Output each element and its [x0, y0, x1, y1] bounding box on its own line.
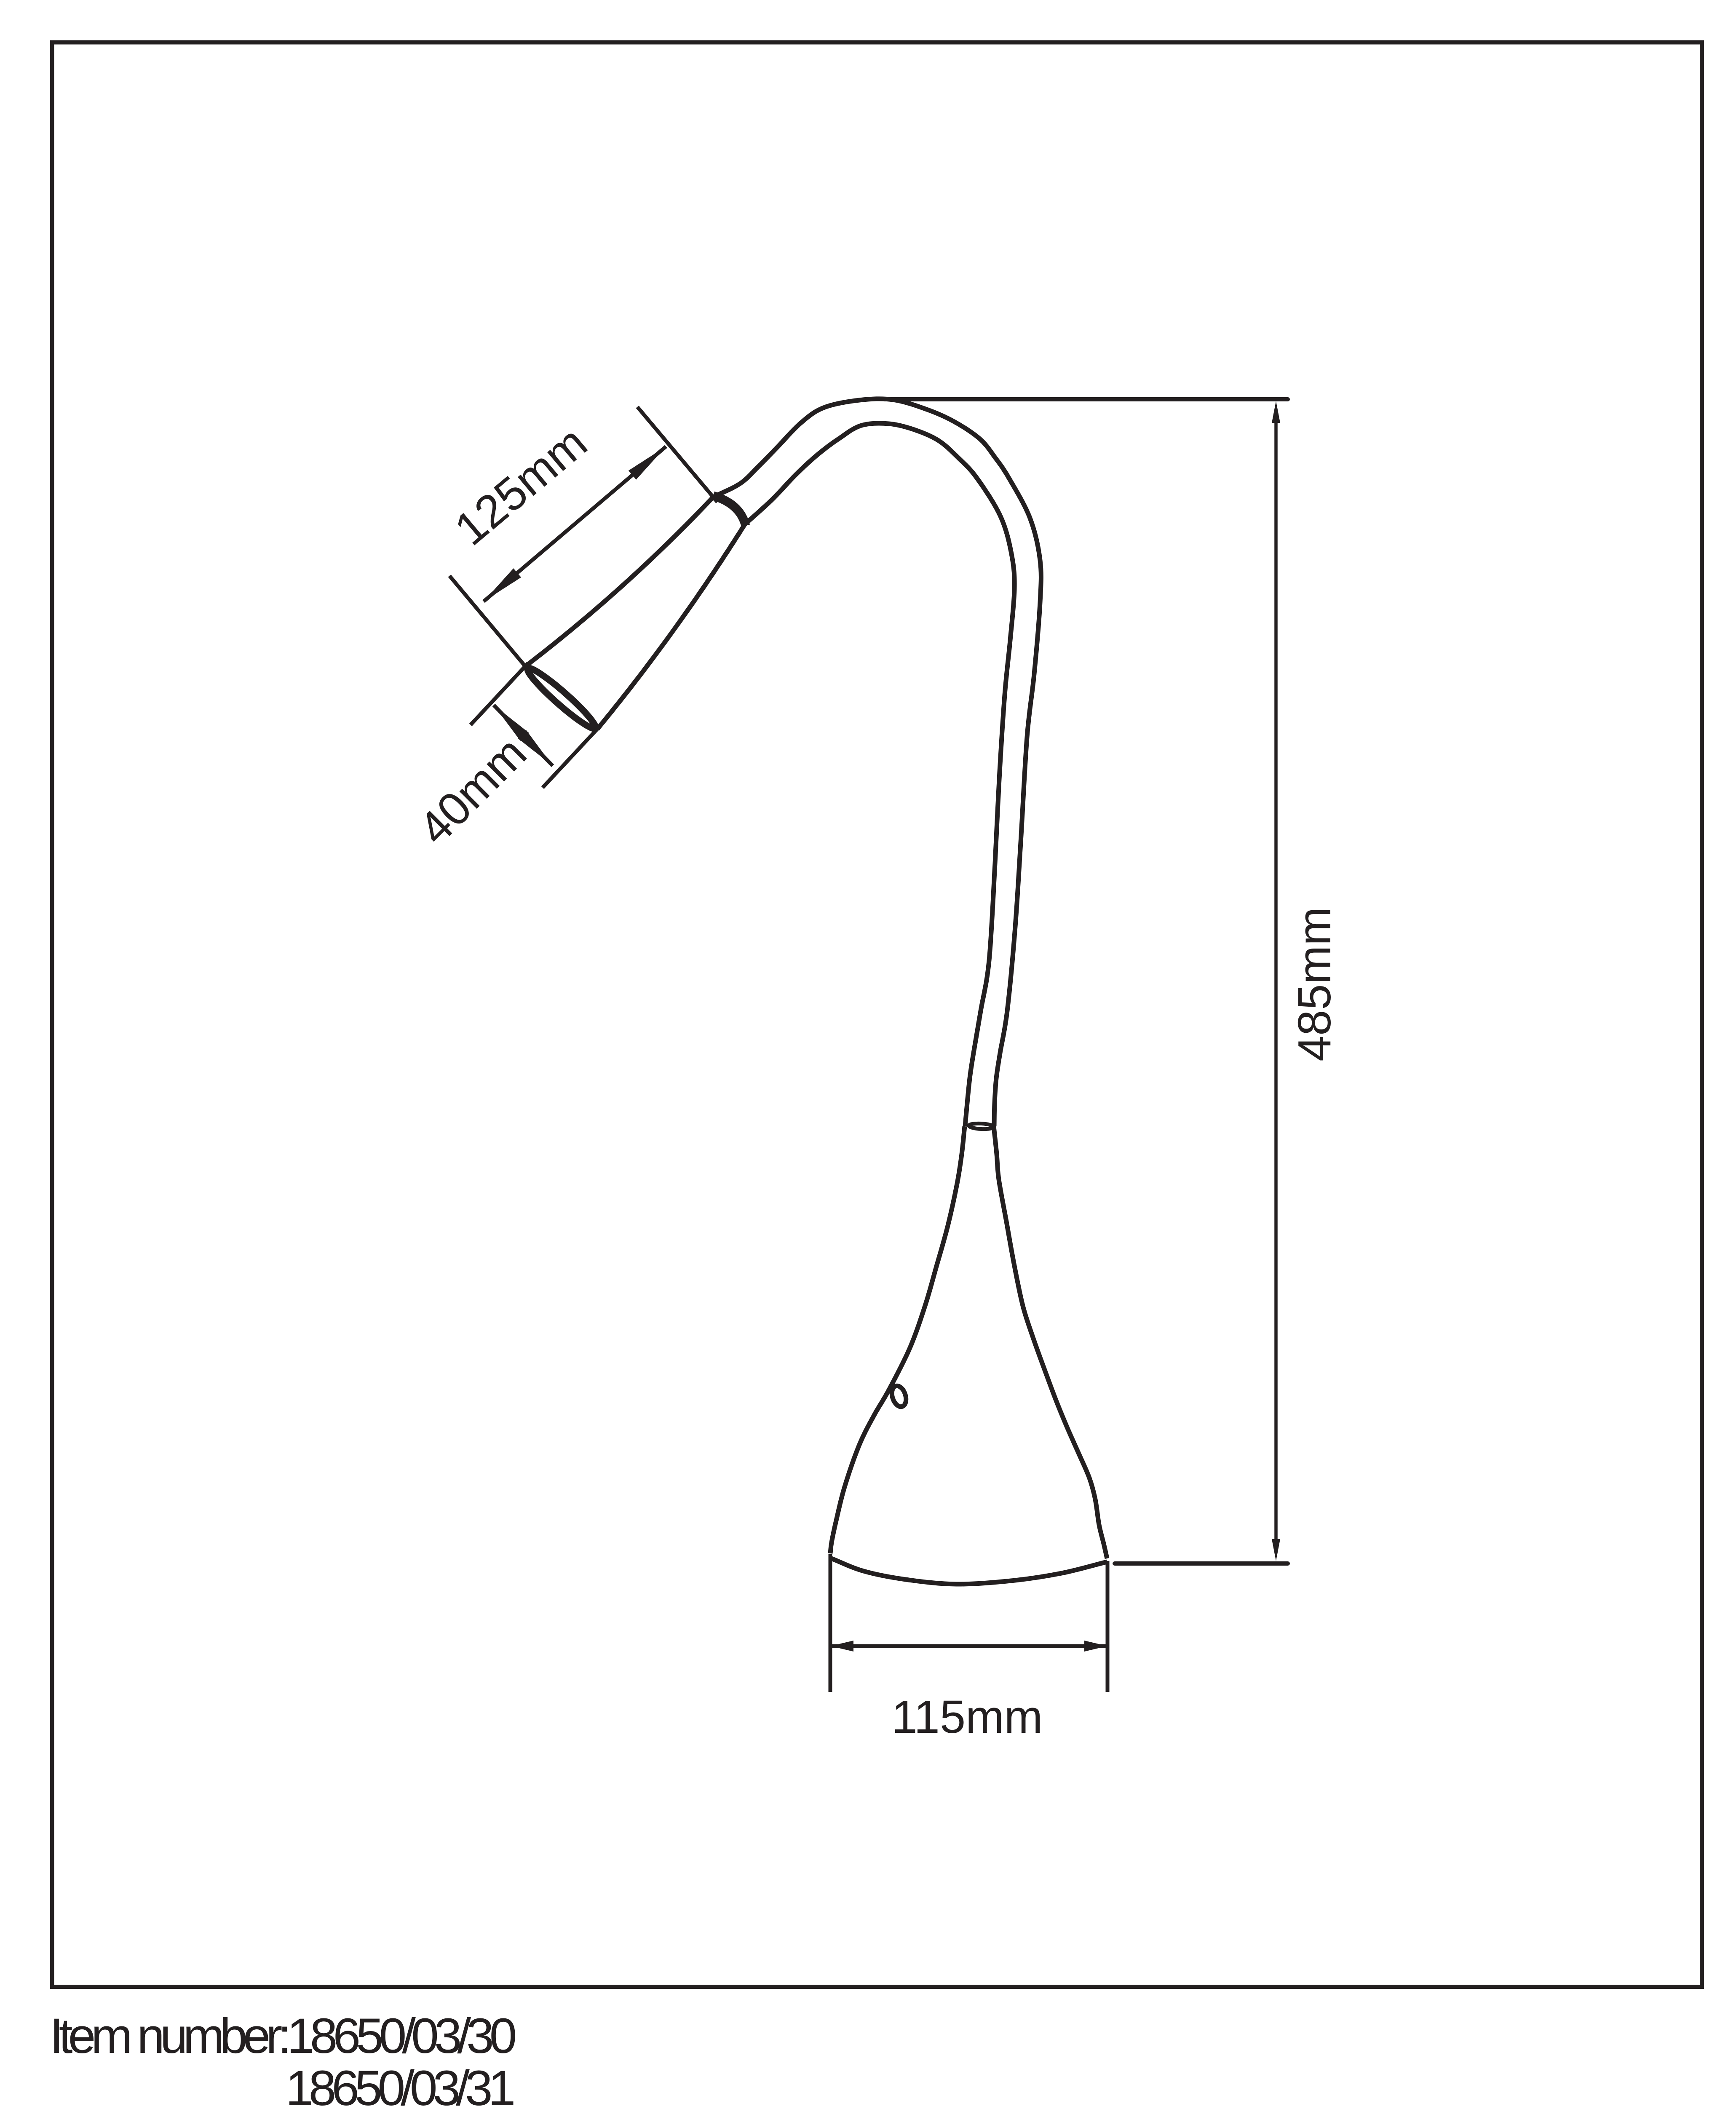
svg-text:125mm: 125mm	[445, 416, 596, 555]
svg-text:115mm: 115mm	[892, 1691, 1043, 1743]
svg-text:Item number:18650/03/30: Item number:18650/03/30	[50, 2008, 516, 2064]
svg-text:485mm: 485mm	[1289, 907, 1340, 1061]
svg-text:18650/03/31: 18650/03/31	[286, 2061, 514, 2106]
svg-text:40mm: 40mm	[409, 727, 536, 855]
